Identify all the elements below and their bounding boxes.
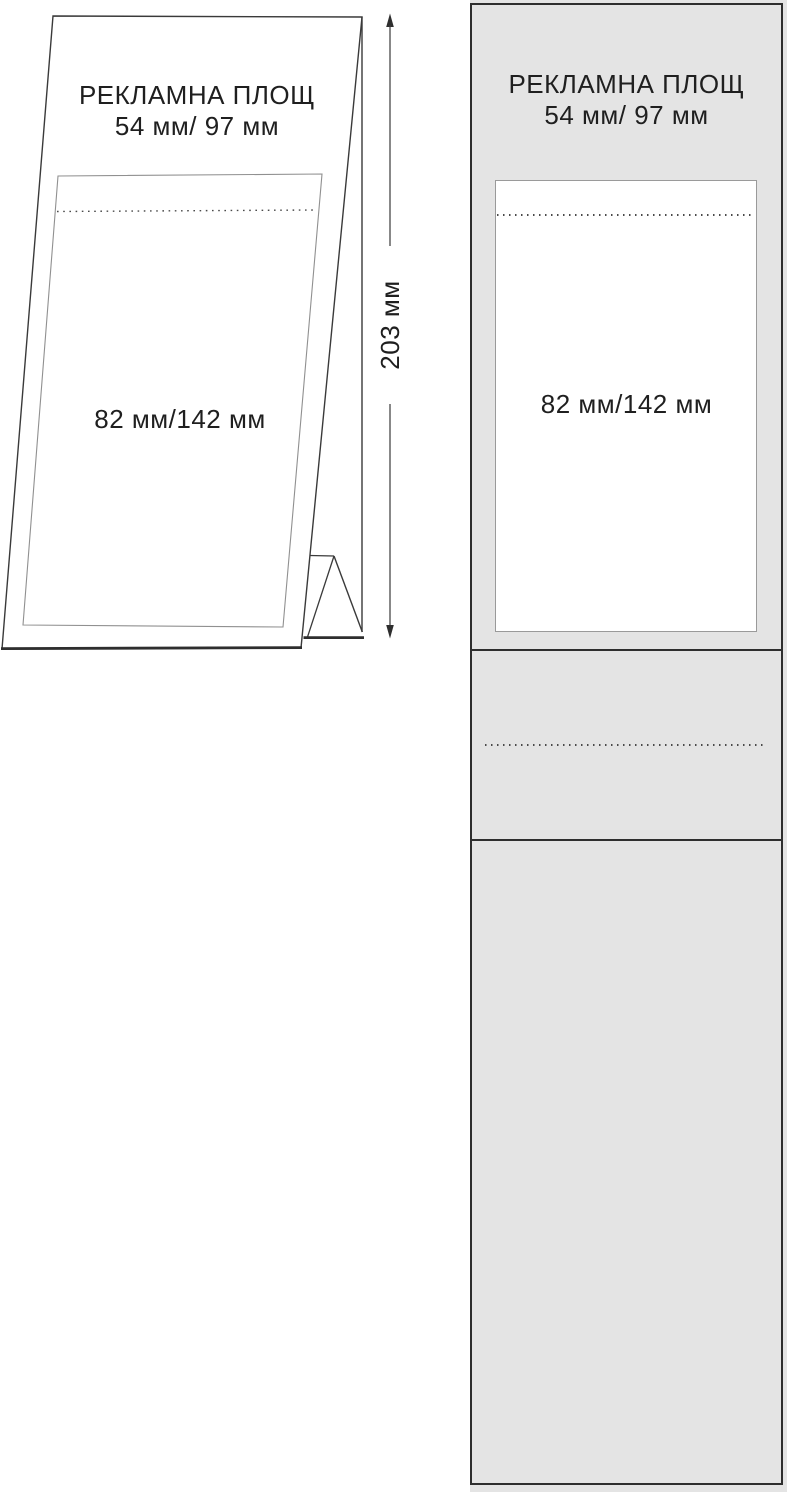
middle-fold-dotted-line	[485, 744, 766, 746]
tent-card-spec-diagram: РЕКЛАМНА ПЛОЩ 54 мм/ 97 мм 82 мм/142 мм …	[0, 0, 787, 1492]
persp-ad-size-label: 54 мм/ 97 мм	[115, 111, 279, 141]
perspective-view: РЕКЛАМНА ПЛОЩ 54 мм/ 97 мм 82 мм/142 мм …	[0, 0, 460, 660]
persp-insert-size-label: 82 мм/142 мм	[94, 404, 265, 434]
foot-hypotenuse-edge	[334, 556, 362, 632]
persp-height-label: 203 мм	[375, 280, 405, 369]
fold-line-top-section	[470, 649, 783, 651]
insert-dotted-line	[497, 214, 753, 216]
template-title-label: РЕКЛАМНА ПЛОЩ	[470, 69, 783, 99]
arrow-head-down-icon	[386, 625, 394, 639]
persp-title-label: РЕКЛАМНА ПЛОЩ	[79, 80, 315, 110]
template-ad-size-label: 54 мм/ 97 мм	[470, 100, 783, 130]
fold-line-bottom-section	[470, 839, 783, 841]
arrow-head-up-icon	[386, 14, 394, 28]
foot-top-fold-line	[310, 556, 334, 557]
template-insert-size-label: 82 мм/142 мм	[470, 389, 783, 419]
foot-left-edge	[308, 556, 335, 637]
front-panel-base-edge	[1, 648, 302, 649]
flat-template-panel: РЕКЛАМНА ПЛОЩ 54 мм/ 97 мм 82 мм/142 мм	[470, 0, 787, 1492]
